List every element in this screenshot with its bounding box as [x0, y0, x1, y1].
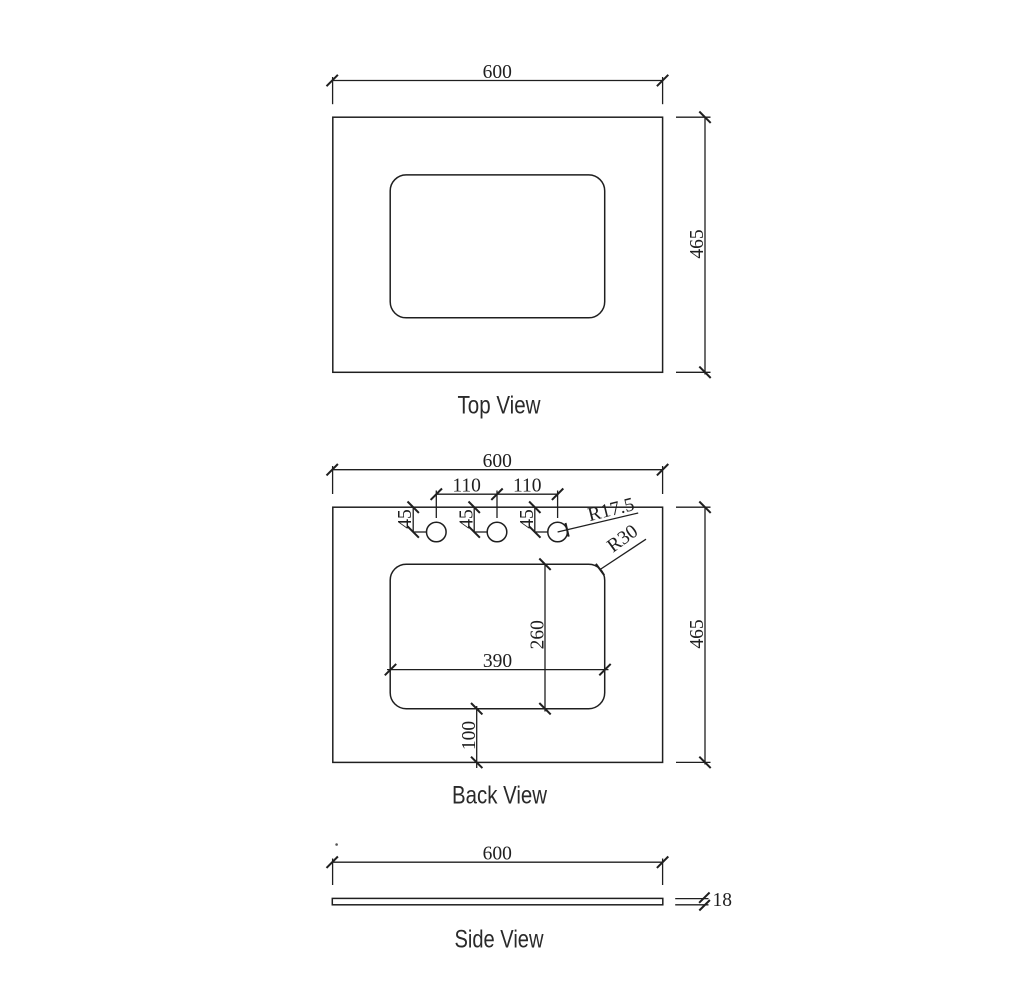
svg-text:260: 260 — [527, 620, 548, 649]
svg-text:465: 465 — [687, 619, 708, 648]
svg-text:45: 45 — [395, 509, 416, 529]
svg-text:100: 100 — [459, 721, 480, 750]
svg-text:45: 45 — [517, 509, 538, 529]
svg-text:Side View: Side View — [455, 926, 545, 954]
svg-text:Top View: Top View — [458, 391, 542, 419]
svg-text:45: 45 — [456, 509, 477, 529]
svg-text:600: 600 — [483, 451, 512, 472]
svg-text:110: 110 — [452, 476, 481, 497]
svg-text:18: 18 — [713, 890, 733, 911]
svg-text:600: 600 — [483, 844, 512, 865]
svg-text:Back View: Back View — [452, 781, 548, 809]
svg-text:465: 465 — [687, 229, 708, 258]
svg-text:110: 110 — [513, 476, 542, 497]
svg-text:390: 390 — [483, 651, 512, 672]
svg-text:600: 600 — [483, 62, 512, 83]
